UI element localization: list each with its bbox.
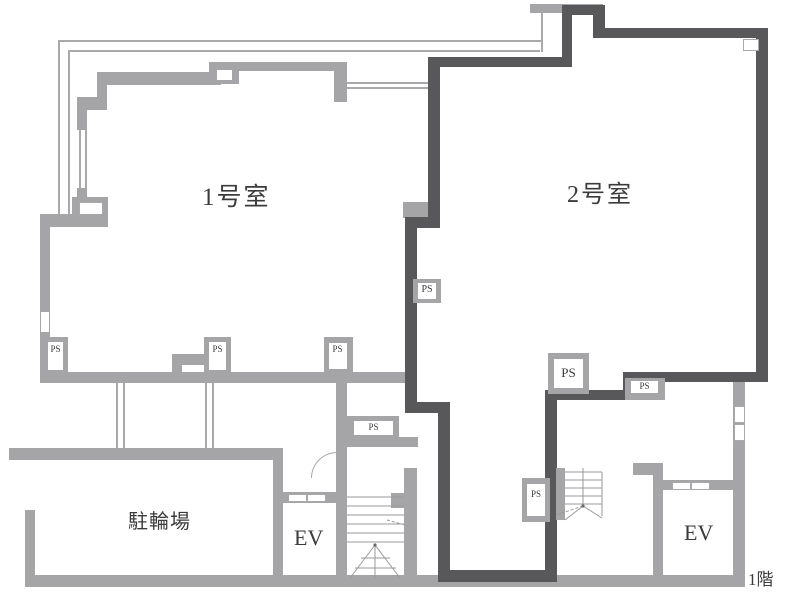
wall-segment (273, 450, 283, 580)
elevator2-label: EV (684, 520, 713, 546)
balcony-line (58, 40, 60, 216)
wall-segment (428, 57, 440, 228)
stairs-icon (347, 468, 417, 580)
bicycle-parking-label: 駐輪場 (128, 505, 191, 534)
wall-segment (9, 448, 283, 460)
floor-label: 1階 (748, 565, 774, 590)
wall-segment (428, 57, 572, 67)
wall-segment (334, 62, 347, 102)
wall-segment (653, 463, 663, 575)
wall-segment (97, 85, 107, 97)
wall-segment (77, 110, 87, 130)
elevator-door (672, 482, 691, 490)
wall-segment (172, 354, 182, 377)
window-opening (734, 406, 745, 423)
ps-label: PS (354, 422, 393, 432)
window-line (347, 87, 428, 89)
ps-label: PS (530, 489, 542, 500)
stairs-icon (556, 466, 604, 522)
window-line (79, 128, 81, 190)
wall-segment (40, 214, 108, 227)
wall-segment (450, 570, 556, 582)
wall-segment (77, 97, 107, 110)
balcony-line (541, 13, 543, 52)
wall-segment (405, 217, 417, 413)
ps-label: PS (50, 344, 61, 355)
wall-segment (438, 402, 450, 582)
window-opening (743, 39, 759, 51)
ps-label: PS (212, 344, 223, 355)
balcony-line (68, 50, 540, 52)
ps-label: PS (418, 284, 436, 295)
room2-label: 2号室 (567, 174, 633, 209)
balcony-line (58, 40, 543, 42)
window-line (347, 82, 428, 84)
partition-line (212, 383, 214, 448)
window-opening (734, 424, 745, 441)
partition-line (123, 383, 125, 448)
wall-segment (336, 447, 347, 580)
window-line (85, 128, 87, 190)
partition-line (205, 383, 207, 448)
elevator-door (288, 494, 307, 502)
elevator-door (307, 494, 326, 502)
floor-plan: 1号室 2号室 駐輪場 EV EV 1階 PS PS PS PS PS PS P… (0, 0, 787, 597)
door-arc-icon (311, 452, 337, 478)
ps-label: PS (554, 365, 583, 381)
wall-segment (403, 202, 429, 218)
wall-segment (756, 28, 768, 382)
window-opening (217, 70, 232, 80)
ps-label: PS (631, 381, 658, 391)
wall-segment (97, 72, 209, 85)
elevator1-label: EV (294, 525, 323, 551)
window-opening (41, 312, 49, 332)
wall-segment (336, 372, 347, 447)
room1-label: 1号室 (202, 177, 271, 213)
elevator-door (691, 482, 710, 490)
balcony-line (68, 50, 70, 216)
partition-line (116, 383, 118, 448)
ps-label: PS (332, 344, 343, 355)
wall-segment (593, 28, 768, 38)
